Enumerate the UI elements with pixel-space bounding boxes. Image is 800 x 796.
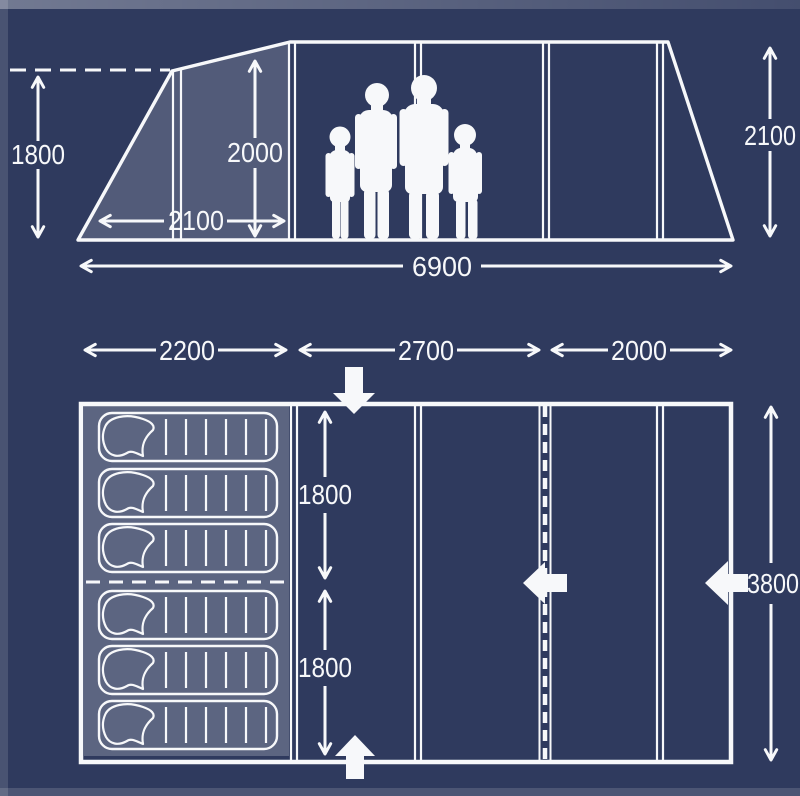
tent-dimensions-diagram: 1800 2000 2100 2100 6900 2200 — [0, 0, 800, 796]
front-width-label: 2000 — [611, 335, 667, 366]
dim-bedroom-depth-bottom: 1800 — [298, 591, 352, 754]
dim-peak-height: 1800 — [11, 77, 65, 237]
bedroom-depth-top-label: 1800 — [298, 479, 352, 510]
woman-silhouette — [355, 83, 397, 239]
side-view: 1800 2000 2100 2100 6900 — [10, 42, 796, 282]
floor-plan-dividers — [291, 404, 663, 761]
floor-plan: 2200 2700 2000 — [81, 335, 799, 779]
door-arrow-left-icon — [523, 562, 567, 604]
dim-total-length: 6900 — [81, 251, 731, 282]
bedroom-depth-bottom-label: 1800 — [298, 652, 352, 683]
bedroom-width-label: 2200 — [159, 335, 215, 366]
dim-rear-height: 2100 — [744, 48, 796, 236]
porch-depth-label: 2100 — [168, 205, 224, 236]
entrance-arrow-down-icon — [333, 367, 375, 414]
interior-height-label: 2000 — [227, 137, 283, 168]
living-width-label: 2700 — [398, 335, 454, 366]
girl-silhouette — [326, 127, 355, 240]
man-silhouette — [400, 75, 449, 239]
frame-edge-left — [0, 0, 8, 796]
dim-living-width: 2700 — [300, 335, 539, 366]
dim-total-width: 3800 — [747, 407, 799, 760]
dim-front-width: 2000 — [552, 335, 731, 366]
entrance-arrow-up-icon — [335, 735, 375, 779]
boy-silhouette — [449, 124, 483, 239]
total-width-label: 3800 — [747, 568, 799, 599]
frame-edge-top — [0, 0, 800, 9]
family-silhouette — [326, 75, 483, 239]
side-door-arrow-left-icon — [705, 561, 748, 605]
peak-height-label: 1800 — [11, 139, 65, 170]
diagram-canvas: 1800 2000 2100 2100 6900 2200 — [0, 0, 800, 796]
total-length-label: 6900 — [412, 251, 472, 282]
dim-bedroom-depth-top: 1800 — [298, 412, 352, 578]
rear-height-label: 2100 — [744, 120, 796, 151]
frame-edge-bottom — [0, 788, 800, 796]
dim-bedroom-width: 2200 — [85, 335, 286, 366]
